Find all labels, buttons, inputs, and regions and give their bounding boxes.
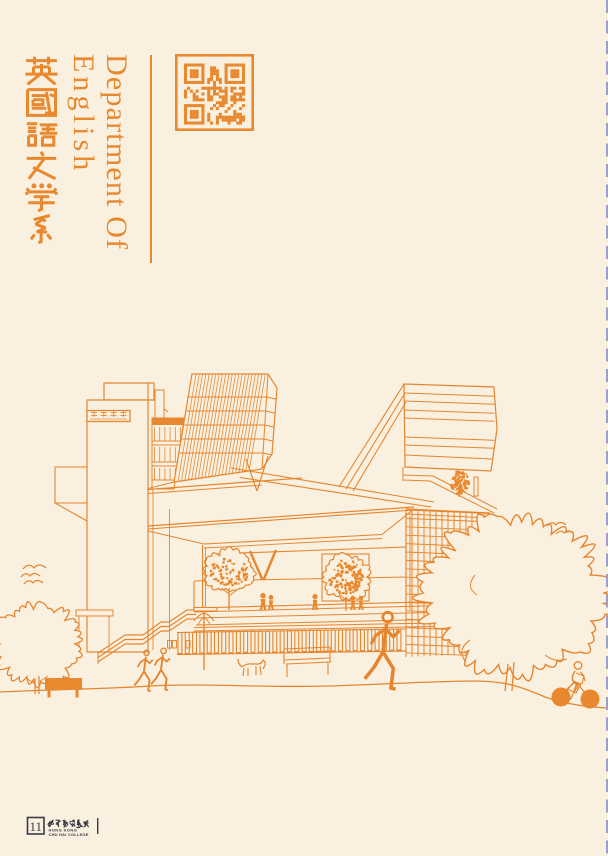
svg-text:CHU HAI COLLEGE: CHU HAI COLLEGE	[49, 832, 89, 837]
svg-text:11: 11	[30, 819, 43, 834]
